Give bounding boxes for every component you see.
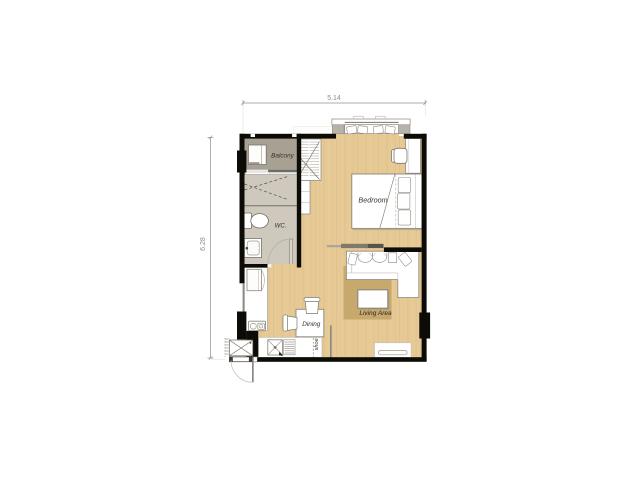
- svg-text:Balcony: Balcony: [271, 153, 295, 160]
- svg-text:Living Area: Living Area: [359, 310, 392, 317]
- svg-text:WC.: WC.: [275, 224, 287, 230]
- svg-text:Bedroom: Bedroom: [358, 195, 387, 204]
- svg-text:Dining: Dining: [302, 321, 321, 328]
- svg-text:6.28: 6.28: [200, 237, 207, 251]
- svg-text:shoe: shoe: [314, 338, 320, 350]
- svg-text:5.14: 5.14: [327, 95, 341, 102]
